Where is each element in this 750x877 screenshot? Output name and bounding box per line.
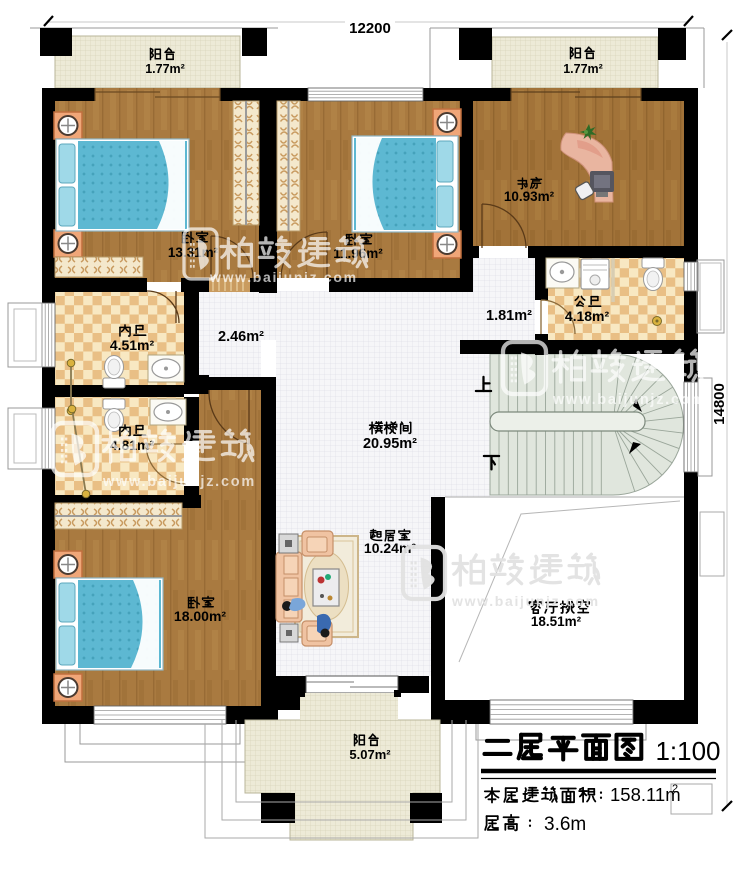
svg-text:1.77m²: 1.77m² <box>563 62 603 76</box>
svg-text:2: 2 <box>672 783 678 795</box>
svg-text:13.31m²: 13.31m² <box>168 245 219 260</box>
svg-text:158.11m: 158.11m <box>610 784 681 805</box>
svg-text:1:100: 1:100 <box>655 736 720 766</box>
svg-text:www.baijunjz.com: www.baijunjz.com <box>451 593 600 609</box>
svg-text:14800: 14800 <box>711 383 728 425</box>
svg-text:10.93m²: 10.93m² <box>504 189 555 204</box>
svg-text:4.18m²: 4.18m² <box>565 308 610 324</box>
svg-text:20.95m²: 20.95m² <box>363 436 417 452</box>
svg-text:4.51m²: 4.51m² <box>110 337 155 353</box>
svg-text:18.51m²: 18.51m² <box>531 614 582 629</box>
svg-text:www.baijunjz.com: www.baijunjz.com <box>552 392 706 408</box>
svg-text:5.07m²: 5.07m² <box>349 747 391 762</box>
svg-text:12200: 12200 <box>349 20 391 37</box>
svg-text:www.baijunjz.com: www.baijunjz.com <box>209 269 358 285</box>
svg-text:www.baijunjz.com: www.baijunjz.com <box>102 474 256 490</box>
svg-text:1.77m²: 1.77m² <box>145 62 185 76</box>
svg-text:2.46m²: 2.46m² <box>218 329 264 345</box>
svg-text:1.81m²: 1.81m² <box>486 308 532 324</box>
svg-text:3.6m: 3.6m <box>544 814 586 835</box>
svg-text:18.00m²: 18.00m² <box>174 608 226 624</box>
